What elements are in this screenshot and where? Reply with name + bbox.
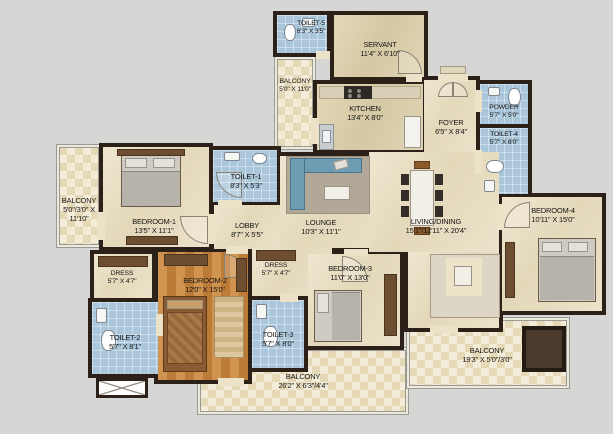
room-label-powder: POWDER5'7" X 5'0" — [480, 104, 528, 121]
living-side-table — [454, 266, 472, 286]
room-label-lounge: LOUNGE10'3" X 11'1" — [288, 218, 354, 236]
room-label-toilet3: TOILET-35'7" X 8'0" — [250, 330, 306, 348]
basin-toilet2-icon — [96, 308, 107, 323]
door-opening-bedroom1 — [207, 214, 215, 244]
room-label-dress2: DRESS5'7" X 4'7" — [248, 262, 304, 279]
bed1-pillow — [153, 158, 175, 168]
door-opening-bedroom2 — [226, 246, 248, 254]
room-label-toilet5: TOILET-56'3" X 3'5" — [288, 20, 334, 37]
bedroom2-rug — [214, 296, 244, 358]
room-label-toilet4: TOILET-45'7" X 8'0" — [478, 131, 530, 148]
bed1-headboard — [117, 149, 185, 156]
room-label-lobby: LOBBY8'7" X 5'5" — [218, 221, 276, 239]
room-label-toilet1: TOILET-18'3" X 5'3" — [218, 172, 274, 190]
bed4-blanket — [540, 256, 594, 300]
room-label-foyer: FOYER6'5" X 8'4" — [424, 118, 478, 136]
room-label-bedroom1: BEDROOM-113'5" X 11'1" — [118, 217, 190, 235]
floor-plan: TOILET-56'3" X 3'5" SERVANT11'4" X 6'10"… — [0, 0, 613, 434]
room-label-kitchen: KITCHEN13'4" X 8'0" — [330, 104, 400, 122]
room-label-servant: SERVANT11'4" X 6'10" — [340, 40, 420, 58]
dining-chair — [435, 174, 443, 185]
room-label-bedroom3: BEDROOM-311'0" X 13'0" — [310, 264, 390, 282]
stove-burners-icon — [348, 89, 352, 93]
room-label-bedroom2: BEDROOM-212'0" X 15'0" — [164, 276, 246, 294]
room-label-living: LIVING/DINING15'1"/12'11" X 20'4" — [390, 217, 482, 235]
room-label-toilet2: TOILET-25'7" X 8'1" — [96, 333, 154, 351]
bed2-pillow — [167, 300, 203, 309]
door-opening-toilet5 — [316, 51, 330, 59]
door-opening-toilet1 — [218, 200, 242, 207]
bed4-pillow — [542, 242, 562, 252]
bedroom4-wardrobe — [505, 242, 515, 298]
lounge-coffee-table — [324, 186, 350, 200]
room-label-bedroom4: BEDROOM-410'11" X 15'0" — [511, 206, 595, 224]
bedroom1-desk — [126, 236, 178, 245]
bed3-blanket — [332, 292, 360, 340]
wc-toilet1-icon — [252, 153, 267, 164]
room-label-balcony-left: BALCONY5'0"/3'0" X11'10" — [53, 196, 105, 223]
door-opening-living-balcony — [430, 326, 458, 334]
basin-toilet4-icon — [484, 180, 495, 192]
bed1-blanket — [122, 171, 180, 206]
door-opening-servant — [406, 74, 422, 82]
bed3-pillow — [317, 293, 329, 313]
door-opening-toilet3 — [280, 294, 298, 302]
bed4-pillow — [568, 242, 588, 252]
door-opening-bedroom3 — [344, 249, 368, 256]
door-opening-bedroom2-balcony — [218, 378, 244, 386]
dress2-wardrobe — [256, 250, 296, 261]
wc-toilet4-icon — [486, 160, 504, 173]
room-label-balcony-bottom: BALCONY26'2" X 6'3"/4'4" — [248, 372, 358, 390]
dress1-wardrobe — [98, 256, 148, 267]
room-label-balcony-right: BALCONY19'3" X 5'0"/3'0" — [432, 346, 542, 364]
bed1-pillow — [125, 158, 147, 168]
door-opening-bedroom4 — [497, 204, 504, 230]
room-label-dress1: DRESS5'7" X 4'7" — [96, 270, 148, 287]
service-shaft — [96, 378, 148, 398]
balcony-top-floor — [275, 57, 315, 149]
lounge-sofa-left — [290, 158, 305, 210]
basin-powder-icon — [488, 87, 500, 96]
door-opening-entrance — [438, 74, 468, 82]
basin-toilet1-icon — [224, 152, 240, 161]
room-label-balcony-top: BALCONY5'0" X 11'0" — [268, 78, 322, 95]
basin-toilet3-icon — [256, 304, 267, 319]
bedroom2-desk — [164, 254, 208, 266]
dining-chair-end — [414, 161, 430, 169]
door-opening-toilet4 — [475, 150, 482, 174]
bedroom3-wardrobe — [384, 274, 397, 336]
entrance-step — [440, 66, 466, 74]
door-opening-kitchen-balcony — [311, 118, 319, 144]
kitchen-appliance-icon — [404, 116, 421, 148]
bed2-blanket — [167, 312, 203, 364]
dining-chair — [401, 174, 409, 185]
kitchen-sink-basin-icon — [322, 130, 331, 143]
